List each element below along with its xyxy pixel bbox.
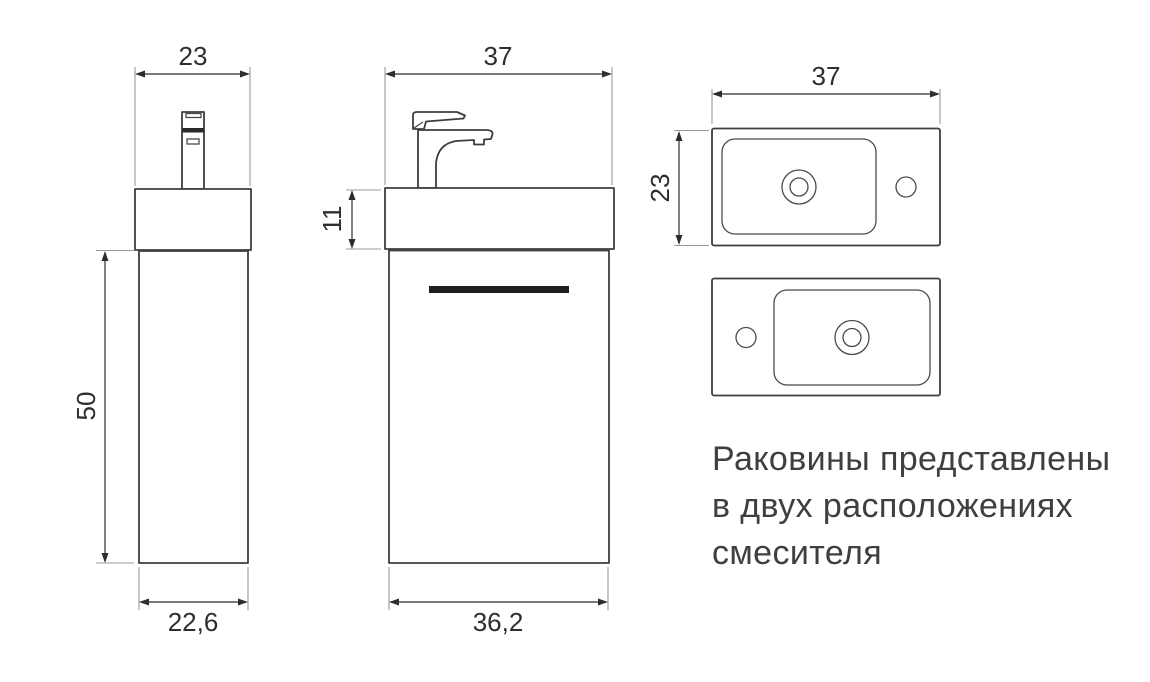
- arrowhead-icon: [385, 71, 395, 78]
- dim-side-bottom-width: 22,6: [139, 567, 248, 637]
- arrowhead-icon: [349, 190, 356, 200]
- dim-label-basin-height: 11: [317, 206, 347, 233]
- arrowhead-icon: [602, 71, 612, 78]
- dim-label-front-bottom-width: 36,2: [473, 607, 524, 637]
- dim-side-height: 50: [71, 251, 134, 564]
- top-view-mixer-left: [712, 279, 940, 396]
- arrowhead-icon: [930, 91, 940, 98]
- door-handle: [429, 286, 569, 293]
- top-view-mixer-right: 37 23: [645, 61, 940, 246]
- arrowhead-icon: [598, 599, 608, 606]
- dim-label-top-width: 37: [812, 61, 841, 91]
- faucet-lever: [413, 112, 465, 129]
- side-view: 23 50 22,6: [71, 41, 251, 637]
- arrowhead-icon: [135, 71, 145, 78]
- note-line: Раковины представлены: [712, 436, 1110, 483]
- arrowhead-icon: [102, 553, 109, 563]
- dim-label-side-top-width: 23: [179, 41, 208, 71]
- faucet-body: [182, 112, 204, 189]
- dim-basin-height: 11: [317, 190, 381, 249]
- dim-front-bottom-width: 36,2: [389, 567, 608, 637]
- dim-label-side-height: 50: [71, 392, 101, 421]
- faucet-front-profile: [413, 112, 493, 188]
- washbasin-front-outline: [385, 188, 614, 249]
- arrowhead-icon: [238, 599, 248, 606]
- dim-label-side-bottom-width: 22,6: [168, 607, 219, 637]
- arrowhead-icon: [389, 599, 399, 606]
- arrowhead-icon: [676, 235, 683, 245]
- drawing-canvas: 23 50 22,6: [0, 0, 1150, 682]
- note-text: Раковины представлены в двух расположени…: [712, 436, 1110, 577]
- dim-label-front-top-width: 37: [484, 41, 513, 71]
- basin-top-outline: [712, 279, 940, 396]
- arrowhead-icon: [712, 91, 722, 98]
- faucet-side-profile: [182, 112, 204, 189]
- note-line: смесителя: [712, 530, 1110, 577]
- arrowhead-icon: [139, 599, 149, 606]
- arrowhead-icon: [349, 239, 356, 249]
- front-view: 37 11 36,2: [317, 41, 614, 637]
- washbasin-side-outline: [135, 189, 251, 250]
- dim-top-width: 37: [712, 61, 940, 124]
- arrowhead-icon: [676, 131, 683, 141]
- arrowhead-icon: [102, 251, 109, 261]
- technical-drawing: 23 50 22,6: [0, 0, 1150, 682]
- dim-label-top-depth: 23: [645, 174, 675, 203]
- basin-top-outline: [712, 129, 940, 246]
- cabinet-front-outline: [389, 251, 609, 564]
- note-line: в двух расположениях: [712, 483, 1110, 530]
- faucet-handle-band: [182, 128, 204, 133]
- dim-top-depth: 23: [645, 131, 709, 246]
- arrowhead-icon: [240, 71, 250, 78]
- faucet-spout-body: [418, 130, 493, 188]
- cabinet-side-outline: [139, 251, 248, 563]
